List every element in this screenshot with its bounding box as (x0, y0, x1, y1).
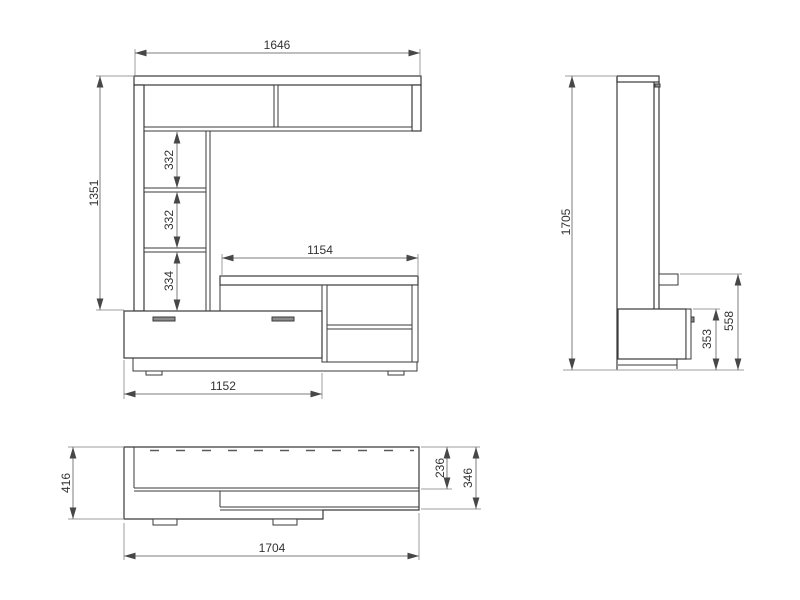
side-drawer-handle (691, 317, 694, 322)
foot-right (388, 371, 404, 375)
dimension-front-total-width: 1646 (135, 38, 420, 75)
side-drawer-box (618, 309, 686, 359)
dimension-label: 334 (162, 271, 176, 291)
dimension-shelf-gap-top: 332 (162, 132, 177, 188)
dimension-drawer-width: 1152 (124, 360, 322, 399)
dimension-label: 236 (433, 458, 447, 478)
bench-middle-shelf (327, 325, 412, 329)
dimension-label: 1351 (87, 179, 101, 206)
top-shelf-panel (134, 76, 421, 85)
dimension-plan-bench-depth: 346 (421, 447, 481, 509)
bench-right-panel (412, 285, 418, 362)
dimension-label: 1705 (559, 208, 573, 235)
technical-drawing: 1646 1351 332 332 334 1154 1152 (0, 0, 800, 600)
dimension-label: 1154 (307, 243, 333, 257)
dimension-bench-top-width: 1154 (222, 243, 418, 276)
dimension-label: 346 (461, 468, 475, 488)
column-right-panel (206, 131, 210, 311)
dimension-label: 332 (162, 150, 176, 170)
drawer-handle-right (272, 317, 294, 321)
extension-lines (222, 254, 418, 276)
dimension-shelf-gap-bottom: 334 (162, 252, 177, 311)
front-view: 1646 1351 332 332 334 1154 1152 (87, 38, 421, 399)
dimension-label: 1646 (264, 38, 291, 52)
side-view: 1705 353 558 (559, 76, 744, 370)
plan-handle-right (273, 519, 297, 525)
bench-divider-panel (322, 285, 327, 362)
dimension-label: 1704 (259, 541, 286, 555)
wall-cabinet-divider (274, 85, 278, 127)
wall-cabinet-right-panel (412, 85, 421, 131)
dimension-label: 332 (162, 210, 176, 230)
dimension-side-drawer-height: 353 (693, 309, 720, 370)
side-plinth (618, 359, 677, 369)
dimension-label: 353 (700, 329, 714, 349)
extension-lines (96, 76, 134, 310)
left-side-panel (134, 85, 144, 311)
side-bench-top-edge (659, 274, 678, 285)
dimension-label: 1152 (210, 379, 236, 393)
dimension-label: 558 (722, 311, 736, 331)
dimension-label: 416 (59, 473, 73, 493)
dimension-shelf-gap-middle: 332 (162, 192, 177, 248)
extension-lines (68, 447, 124, 519)
column-shelf-upper (144, 188, 206, 192)
tv-bench-top-panel (220, 276, 418, 285)
side-top-panel (617, 76, 659, 82)
column-shelf-lower (144, 248, 206, 252)
side-drawer-front-panel (686, 309, 691, 359)
foot-left (146, 371, 162, 375)
wall-cabinet-bottom-shelf (144, 127, 412, 131)
plan-outline (124, 447, 419, 519)
plinth (133, 358, 417, 371)
plan-view: 416 236 346 1704 (59, 447, 481, 560)
wall-bracket (655, 84, 660, 87)
dimension-plan-total-depth: 416 (59, 447, 124, 519)
dimension-front-left-height: 1351 (87, 76, 134, 310)
drawer-handle-left (153, 317, 175, 321)
plan-handle-left (153, 519, 177, 525)
